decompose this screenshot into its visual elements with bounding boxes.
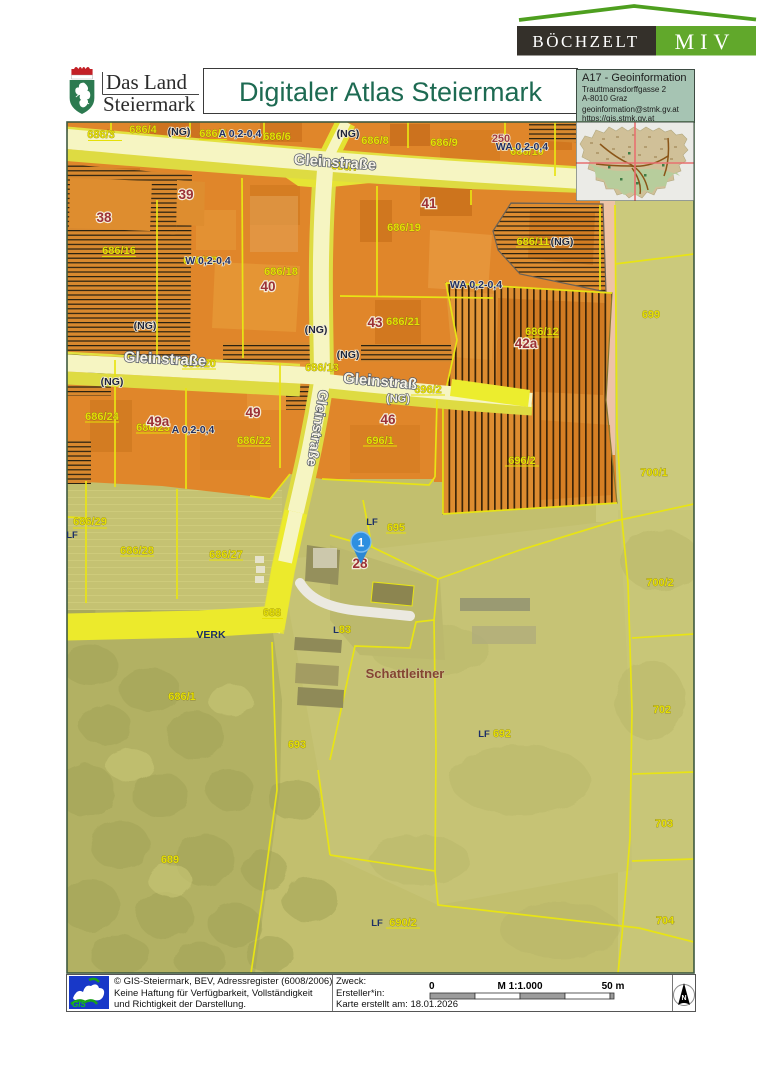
svg-text:VERK: VERK <box>196 629 226 641</box>
svg-text:686/18: 686/18 <box>264 266 298 278</box>
svg-text:A 0,2-0,4: A 0,2-0,4 <box>172 424 215 436</box>
svg-text:686/29: 686/29 <box>73 516 107 528</box>
svg-text:LF: LF <box>366 517 378 528</box>
svg-text:Gleinstraße: Gleinstraße <box>304 389 332 468</box>
svg-text:W 0,2-0,4: W 0,2-0,4 <box>185 255 231 267</box>
svg-text:700/2: 700/2 <box>646 577 674 589</box>
svg-text:0: 0 <box>429 981 435 992</box>
svg-text:686/16: 686/16 <box>102 245 136 257</box>
svg-text:699: 699 <box>642 309 660 321</box>
svg-text:686/3: 686/3 <box>87 129 115 141</box>
svg-text:N: N <box>681 995 686 1002</box>
svg-text:686/27: 686/27 <box>209 549 243 561</box>
svg-text:43: 43 <box>367 315 383 330</box>
svg-text:42a: 42a <box>515 336 538 351</box>
svg-text:686/1: 686/1 <box>168 691 196 703</box>
svg-text:A 0,2-0,4: A 0,2-0,4 <box>219 128 262 140</box>
svg-text:695: 695 <box>387 522 405 534</box>
svg-text:L: L <box>333 625 339 636</box>
svg-text:686/6: 686/6 <box>263 131 291 143</box>
svg-text:Gleinstraße: Gleinstraße <box>123 349 206 370</box>
svg-text:LF: LF <box>66 530 78 541</box>
svg-text:Schattleitner: Schattleitner <box>366 666 445 681</box>
svg-text:46: 46 <box>380 412 396 427</box>
svg-text:41: 41 <box>421 196 437 211</box>
svg-text:696/2: 696/2 <box>414 384 442 396</box>
svg-text:686/13: 686/13 <box>305 362 339 374</box>
svg-text:686/8: 686/8 <box>361 135 389 147</box>
svg-text:686/9: 686/9 <box>430 137 458 149</box>
svg-text:WA 0,2-0,4: WA 0,2-0,4 <box>450 279 502 291</box>
svg-text:49: 49 <box>245 405 260 420</box>
svg-text:686/19: 686/19 <box>387 222 421 234</box>
svg-text:40: 40 <box>260 279 275 294</box>
svg-text:GIS: GIS <box>72 1000 86 1009</box>
svg-text:(NG): (NG) <box>305 324 328 336</box>
svg-text:MIV: MIV <box>675 29 736 54</box>
svg-text:LF: LF <box>371 918 383 929</box>
svg-text:693: 693 <box>288 739 306 751</box>
svg-text:686/11: 686/11 <box>516 236 549 248</box>
svg-text:689: 689 <box>161 854 179 866</box>
svg-text:686/21: 686/21 <box>386 316 420 328</box>
svg-text:702: 702 <box>653 704 671 716</box>
svg-text:686/22: 686/22 <box>237 435 271 447</box>
svg-text:(NG): (NG) <box>551 236 574 248</box>
svg-text:700/1: 700/1 <box>640 467 668 479</box>
svg-text:686/4: 686/4 <box>129 124 157 136</box>
svg-text:(NG): (NG) <box>337 349 360 361</box>
svg-text:(NG): (NG) <box>101 376 124 388</box>
svg-text:49a: 49a <box>147 414 170 429</box>
svg-text:686/28: 686/28 <box>120 545 154 557</box>
svg-text:686/24: 686/24 <box>85 411 120 423</box>
svg-text:Gleinstraße: Gleinstraße <box>293 151 377 174</box>
svg-text:692: 692 <box>493 728 511 740</box>
svg-text:BÖCHZELT: BÖCHZELT <box>532 32 639 51</box>
svg-text:696/2: 696/2 <box>508 455 536 467</box>
svg-text:696/1: 696/1 <box>366 435 394 447</box>
svg-text:39: 39 <box>178 187 193 202</box>
svg-text:250: 250 <box>492 133 510 145</box>
svg-text:Gleinstraß: Gleinstraß <box>342 370 417 393</box>
svg-text:(NG): (NG) <box>134 320 157 332</box>
svg-text:704: 704 <box>656 915 675 927</box>
svg-text:(NG): (NG) <box>168 126 191 138</box>
svg-text:1: 1 <box>358 538 365 550</box>
svg-text:690/2: 690/2 <box>389 917 417 929</box>
svg-text:LF: LF <box>478 729 490 740</box>
svg-text:(NG): (NG) <box>386 393 410 405</box>
svg-text:688: 688 <box>263 607 281 619</box>
svg-text:M 1:1.000: M 1:1.000 <box>497 981 542 992</box>
svg-text:703: 703 <box>655 818 673 830</box>
svg-text:50 m: 50 m <box>602 981 625 992</box>
svg-text:(NG): (NG) <box>337 128 360 140</box>
svg-text:83: 83 <box>339 624 351 636</box>
svg-text:38: 38 <box>96 210 112 225</box>
